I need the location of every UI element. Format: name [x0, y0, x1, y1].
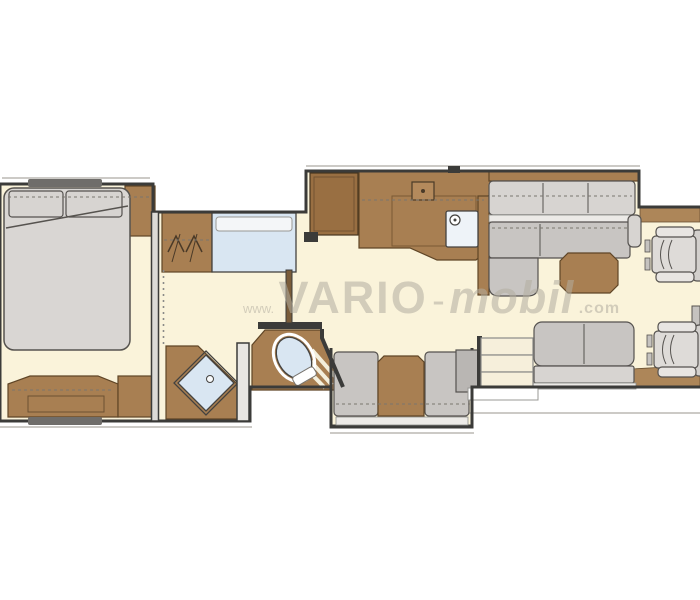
hob-knob — [421, 189, 425, 193]
dinette-table — [378, 356, 424, 416]
l-sofa-backrest — [489, 181, 635, 215]
shower-partition-wall — [237, 343, 249, 421]
seat-armrest-top — [658, 322, 696, 332]
bedroom-partition-wall — [152, 212, 159, 421]
dresser-side-cabinet — [118, 376, 154, 417]
seat-armrest-bottom — [656, 272, 694, 282]
seat-base-bar-2 — [645, 258, 650, 270]
pillow-right — [66, 191, 122, 217]
kitchen-wall-stub — [304, 232, 318, 242]
dinette-slideout-sill — [336, 417, 468, 425]
seat-base-bar-2 — [647, 353, 652, 365]
seat-armrest-top — [656, 227, 694, 237]
watermark-tld: .com — [579, 300, 620, 317]
l-sofa-armrest-band — [489, 215, 635, 222]
shower-drain — [207, 376, 214, 383]
entry-platform — [468, 388, 538, 400]
entry-step-2 — [481, 355, 533, 372]
wall-latch — [448, 166, 460, 173]
two-seater-seats — [534, 366, 634, 383]
seat-cushion — [652, 236, 696, 273]
seat-base-bar-1 — [645, 240, 650, 252]
cab-wood-floor-top — [640, 208, 700, 222]
watermark-www: www. — [242, 301, 274, 316]
washbasin-shelf — [216, 217, 292, 231]
floorplan-svg: www. VARIO - mobil .com — [0, 0, 700, 600]
floorplan-image: www. VARIO - mobil .com — [0, 0, 700, 600]
wardrobe — [162, 213, 212, 272]
slideout-handle-bottom — [28, 417, 102, 425]
watermark-brand-suffix: mobil — [449, 272, 574, 323]
faucet-dot — [454, 219, 457, 222]
entry-step-1 — [481, 338, 533, 355]
seat-armrest-bottom — [658, 367, 696, 377]
slideout-handle-top — [28, 179, 102, 187]
tall-cabinet — [310, 173, 358, 235]
l-sofa-armrest — [628, 215, 641, 247]
watermark-sep: - — [432, 280, 445, 322]
watermark-brand: VARIO — [279, 272, 428, 323]
seat-base-bar-1 — [647, 335, 652, 347]
seat-cushion — [654, 331, 698, 368]
pillow-left — [9, 191, 63, 217]
